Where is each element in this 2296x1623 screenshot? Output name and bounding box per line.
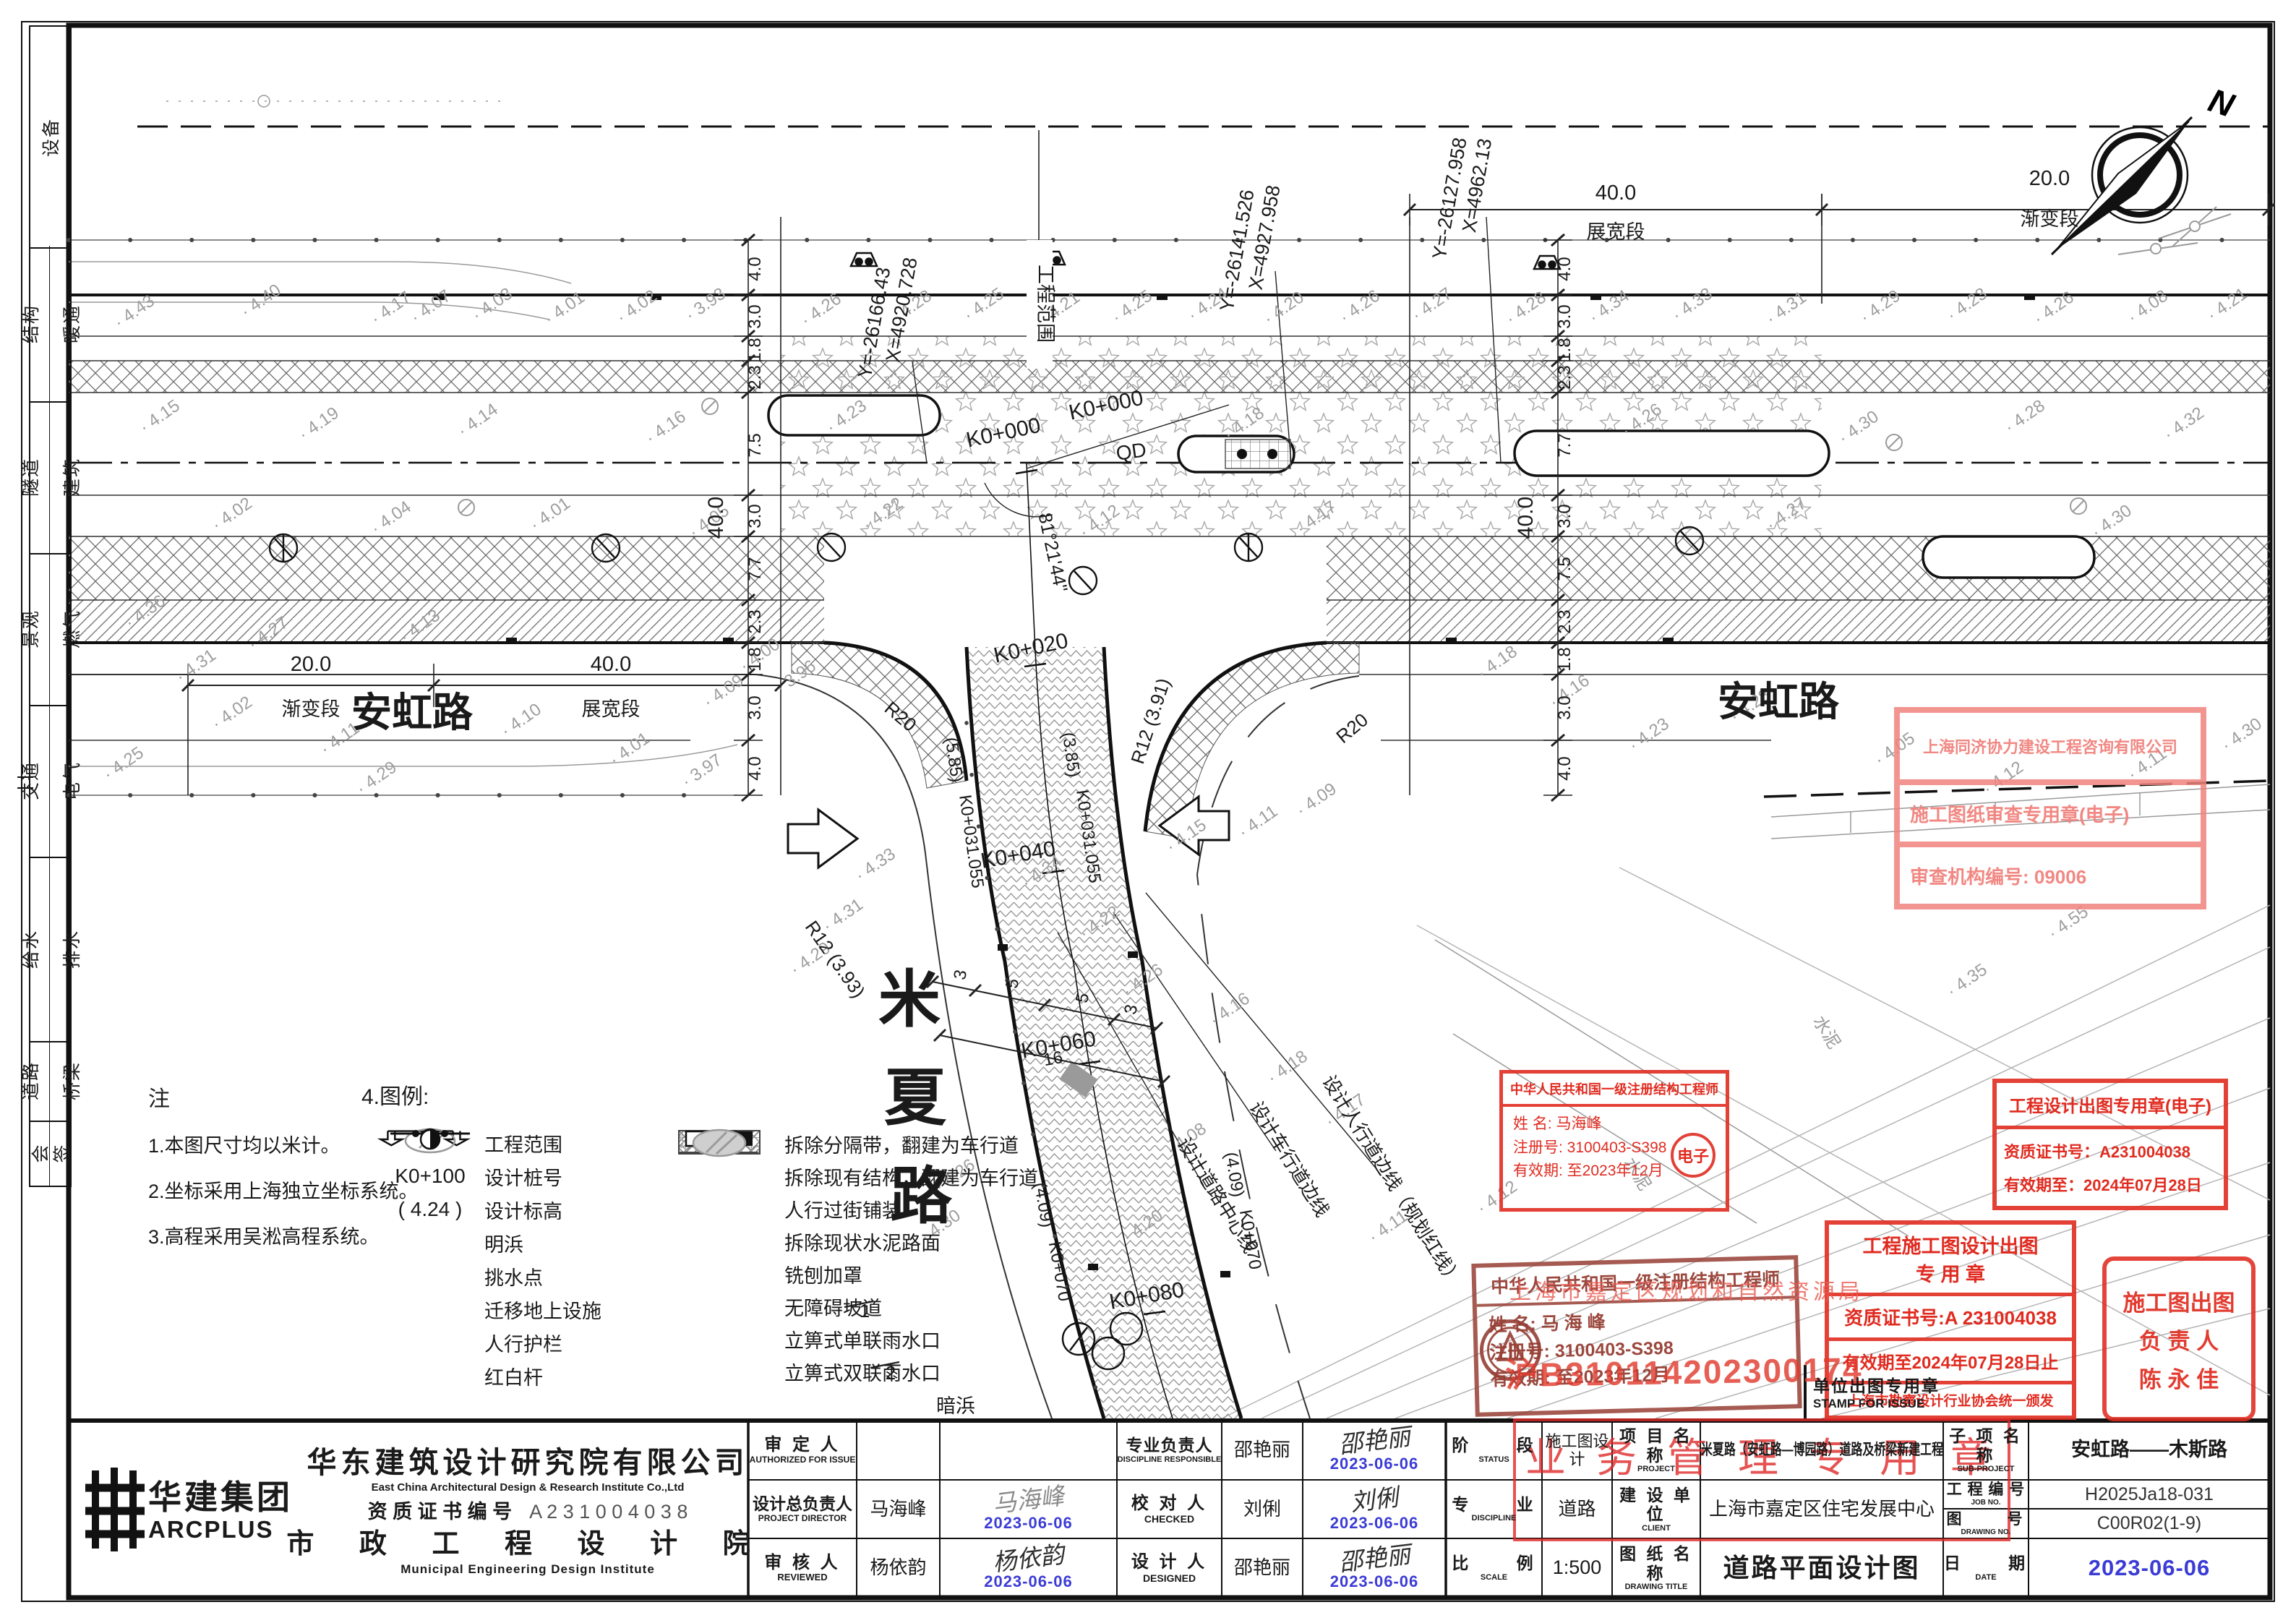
drawing-label: 20.0 <box>291 653 331 676</box>
legend-item: 立箅式双联雨水口 <box>676 1356 1038 1388</box>
drawing-label: 2.3 <box>745 365 765 389</box>
drawing-label: 1.8 <box>1555 647 1575 671</box>
status-label: 阶 段 STATUS <box>1446 1421 1542 1480</box>
drawing-label: 3.0 <box>1555 304 1575 328</box>
spot-elevation: · 4.33 <box>1669 284 1716 325</box>
jobno-label: 工 程 编 号 JOB NO. <box>1943 1480 2029 1509</box>
drawing-label: 20.0 <box>2029 167 2070 190</box>
subproject-value: 安虹路——木斯路 <box>2029 1421 2270 1480</box>
engineer-stamp-electronic: 中华人民共和国一级注册结构工程师 姓 名: 马海峰 注册号: 3100403-S… <box>1499 1070 1729 1212</box>
scale-label: 比 例 SCALE <box>1446 1538 1542 1598</box>
discipline-value: 道路 <box>1542 1480 1612 1538</box>
company-block: 华东建筑设计研究院有限公司 East China Architectural D… <box>311 1428 745 1594</box>
spot-elevation: · 4.32 <box>2160 403 2208 445</box>
spot-elevation: · 4.30 <box>1835 407 1882 448</box>
spot-elevation: · 3.93 <box>682 284 729 325</box>
subproject-label: 子 项 名 称 SUB-PROJECT <box>1943 1421 2029 1480</box>
association-seal-icon <box>1477 1316 1543 1383</box>
date-value: 2023-06-06 <box>2029 1538 2270 1598</box>
drawing-title-value: 道路平面设计图 <box>1700 1538 1943 1598</box>
role-authorized: 审 定 人 AUTHORIZED FOR ISSUE <box>748 1421 857 1480</box>
legend-item: 明浜 <box>376 1226 601 1259</box>
drawing-label: 3.0 <box>1555 695 1575 719</box>
drawing-label: QD <box>1115 438 1148 465</box>
dwgno-label: 图 号 DRAWING NO. <box>1943 1509 2029 1538</box>
spot-elevation: · 4.33 <box>852 844 899 886</box>
spot-elevation: · 4.02 <box>208 693 256 734</box>
drawing-label: 16 <box>1042 1048 1064 1070</box>
spot-elevation: · 4.34 <box>1585 286 1633 327</box>
review-stamp: 上海同济协力建设工程咨询有限公司 施工图纸审查专用章(电子) 审查机构编号: 0… <box>1894 707 2206 909</box>
drawing-label: 7.7 <box>745 557 765 581</box>
spot-elevation: · 4.04 <box>367 497 415 539</box>
drawing-label: 渐变段 <box>2021 208 2079 230</box>
drawing-label: 4.0 <box>745 756 765 780</box>
spot-elevation: · 4.01 <box>606 729 654 770</box>
spot-elevation: · 4.09 <box>1293 779 1340 821</box>
drawing-label: 3.0 <box>1555 504 1575 528</box>
drawing-label: 40.0 <box>1595 181 1636 205</box>
spot-elevation: · 4.23 <box>1943 284 1991 325</box>
drawing-label: 安虹路 <box>351 690 474 735</box>
drawing-label: 7.5 <box>1555 557 1575 581</box>
drawing-label: 夏 <box>884 1063 947 1133</box>
spot-elevation: · 4.03 <box>468 284 516 325</box>
drawing-label: 展宽段 <box>582 698 641 720</box>
role-reviewed: 审 核 人 REVIEWED <box>748 1538 857 1598</box>
north-compass: N <box>2052 81 2239 254</box>
project-label: 项 目 名 称 PROJECT <box>1612 1421 1700 1480</box>
name-checked: 刘俐 <box>1222 1480 1303 1538</box>
drawing-label: 40.0 <box>1514 497 1538 539</box>
legend-item: 迁移地上设施 <box>376 1293 601 1326</box>
sig-discipline: 邵艳丽 2023-06-06 <box>1303 1421 1446 1480</box>
stamp-for-issue-cell: 单位出图专用章 STAMP FOR ISSUE <box>1813 1372 1940 1411</box>
drawing-label: 40.0 <box>704 497 728 539</box>
sidebar-item-landscape-gas: 景观燃气 <box>29 553 72 706</box>
drawing-label: 3.0 <box>745 695 765 719</box>
drawing-label: 工程范围 <box>1035 265 1056 343</box>
sig-designed: 邵艳丽 2023-06-06 <box>1303 1538 1446 1598</box>
drawing-label: 安虹路 <box>1718 679 1840 724</box>
project-value: 米夏路（安虹路—博园路）道路及桥梁新建工程 <box>1700 1421 1943 1480</box>
legend-item: K0+100 设计桩号 <box>376 1160 601 1193</box>
electronic-seal: 电子 <box>1671 1133 1715 1178</box>
name-discipline: 邵艳丽 <box>1222 1421 1303 1480</box>
drawing-label: 渐变段 <box>282 698 340 720</box>
legend-title: 4.图例: <box>361 1079 429 1110</box>
drawing-label: R20 <box>1332 708 1372 748</box>
spot-elevation: · 4.31 <box>172 646 220 687</box>
drawing-label: 2.3 <box>745 609 765 633</box>
legend-item: 拆除现状水泥路面 <box>676 1225 1038 1258</box>
spot-elevation: · 4.29 <box>353 758 400 799</box>
spot-elevation: · 4.07 <box>407 286 455 327</box>
status-value: 施工图设计 <box>1542 1421 1612 1480</box>
drawing-label: 3.0 <box>745 504 765 528</box>
sidebar-item-water: 给水排水 <box>29 857 72 1042</box>
sig-project-director: 马海峰 2023-06-06 <box>940 1480 1117 1538</box>
drawing-label: 3.0 <box>745 304 765 328</box>
spot-elevation: · 4.26 <box>1336 286 1384 327</box>
name-project-director: 马海峰 <box>857 1480 940 1538</box>
spot-elevation: · 4.10 <box>497 700 545 741</box>
drawing-title-label: 图 纸 名 称 DRAWING TITLE <box>1612 1538 1700 1598</box>
drawing-label: 7.7 <box>1555 433 1575 457</box>
spot-elevation: · 4.40 <box>237 281 285 322</box>
elevation-sample: ( 4.24 ) <box>376 1198 484 1221</box>
sig-checked: 刘俐 2023-06-06 <box>1303 1480 1446 1538</box>
jobno-value: H2025Ja18-031 <box>2029 1480 2270 1509</box>
spot-elevation: · 4.23 <box>1625 714 1673 755</box>
spot-elevation: · 4.25 <box>960 284 1008 325</box>
spot-elevation: · 4.28 <box>2001 396 2049 437</box>
sidebar-item-equipment: 设备 <box>29 25 72 249</box>
responsible-person-stamp: 施工图出图 负 责 人 陈 永 佳 <box>2102 1256 2256 1421</box>
spot-elevation: · 4.35 <box>1943 960 1991 1001</box>
legend-item: 无障碍坡道 <box>676 1290 1038 1323</box>
drawing-sheet: N · 4.43· 4.40· 4.17· 4.07· 4.03· 4.01· … <box>0 0 2296 1623</box>
name-reviewed: 杨依韵 <box>857 1538 940 1598</box>
discipline-label: 专 业 DISCIPLINE <box>1446 1480 1542 1538</box>
spot-elevation: · 4.15 <box>136 396 184 437</box>
legend-item: ( 4.24 ) 设计标高 <box>376 1193 601 1226</box>
spot-elevation: · 4.19 <box>295 403 343 445</box>
drawing-label: 设计车行道边线 <box>1246 1097 1334 1220</box>
spot-elevation: · 4.27 <box>1408 284 1456 325</box>
sig-reviewed: 杨依韵 2023-06-06 <box>940 1538 1117 1598</box>
role-project-director: 设计总负责人 PROJECT DIRECTOR <box>748 1480 857 1538</box>
drawing-label: 1.8 <box>745 338 765 361</box>
legend-item: 暗浜 <box>676 1388 1038 1421</box>
spot-elevation: · 4.18 <box>1473 642 1521 683</box>
drawing-label: 水泥 <box>1809 1013 1843 1053</box>
scale-value: 1:500 <box>1542 1538 1612 1598</box>
legend-item: 铣刨加罩 <box>676 1258 1038 1290</box>
date-label: 日 期 DATE <box>1943 1538 2029 1598</box>
name-designed: 邵艳丽 <box>1222 1538 1303 1598</box>
ramp-icons <box>851 252 1560 269</box>
role-checked: 校 对 人 CHECKED <box>1117 1480 1222 1538</box>
spot-elevation: · 4.29 <box>1856 286 1904 327</box>
spot-elevation: · 4.16 <box>642 407 690 448</box>
drawing-label: 设计人行道边线（规划红线） <box>1318 1071 1466 1290</box>
spot-elevation: · 4.01 <box>526 494 574 535</box>
legend-item: 立箅式单联雨水口 <box>676 1323 1038 1356</box>
legend-item: 红白杆 <box>376 1359 601 1392</box>
crossing-pad <box>1225 440 1290 468</box>
existing-features <box>69 95 2270 1236</box>
drawing-label: 2.3 <box>1555 609 1575 633</box>
legend-item: 人行护栏 <box>376 1326 601 1359</box>
spot-elevation: · 4.21 <box>2203 284 2251 325</box>
sidebar-label: 设备 <box>37 117 63 156</box>
drawing-label: 展宽段 <box>1587 221 1645 243</box>
north-label: N <box>2204 81 2239 124</box>
drawing-label: 40.0 <box>591 653 631 676</box>
drawing-label: 4.0 <box>1555 257 1575 281</box>
arcplus-logo-icon <box>85 1466 145 1553</box>
legend-item: 挑水点 <box>376 1259 601 1293</box>
role-designed: 设 计 人 DESIGNED <box>1117 1538 1222 1598</box>
client-label: 建 设 单 位 CLIENT <box>1612 1480 1700 1538</box>
legend-item: 拆除现有结构，翻建为车行道 <box>676 1160 1038 1193</box>
legend-item: 人行过街铺装 <box>676 1193 1038 1225</box>
drawing-label: 2.3 <box>1555 365 1575 389</box>
spot-elevation: · 3.97 <box>678 750 726 792</box>
drawing-label: 1.8 <box>745 647 765 671</box>
sidebar-item-road-bridge: 道路桥梁 <box>29 1041 72 1122</box>
drawing-label: 7.5 <box>745 433 765 457</box>
drawing-label: 米 <box>878 965 941 1035</box>
sidebar-item-traffic-electric: 交通电气 <box>29 705 72 858</box>
spot-elevation: · 4.02 <box>208 494 256 535</box>
sidebar-item-countersign: 会签 <box>29 1121 72 1187</box>
station-sample: K0+100 <box>376 1165 484 1188</box>
role-discipline-responsible: 专业负责人 DISCIPLINE RESPONSIBLE <box>1117 1421 1222 1480</box>
sidebar-item-tunnel-arch: 隧道建筑 <box>29 401 72 554</box>
spot-elevation: · 4.25 <box>1108 286 1156 327</box>
legend-right: 拆除分隔带，翻建为车行道 拆除现有结构，翻建为车行道 人行过街铺装 拆除现状水泥… <box>676 1128 1038 1421</box>
sidebar-item-structure-hvac: 结构暖通 <box>29 246 72 403</box>
company-logo-text: 华建集团 ARCPLUS <box>148 1468 307 1554</box>
drawing-label: 4.0 <box>745 257 765 281</box>
engineer-stamp-paper: 中华人民共和国一级注册结构工程师 姓 名: 马 海 峰 注册号: 3100403… <box>1471 1255 1802 1417</box>
dwgno-value: C00R02(1-9) <box>2029 1509 2270 1538</box>
spot-elevation: · 4.09 <box>700 671 748 712</box>
legend-left: 工程范围 K0+100 设计桩号 ( 4.24 ) 设计标高 明浜 挑水点 迁移… <box>376 1126 601 1392</box>
drawing-label: 3 <box>950 968 971 982</box>
spot-elevation: · 4.43 <box>111 291 158 333</box>
spot-elevation: · 4.30 <box>2218 714 2266 755</box>
spot-elevation: · 4.14 <box>454 400 502 441</box>
drawing-label: 4.0 <box>1555 756 1575 780</box>
drawing-label: 1.8 <box>1555 338 1575 361</box>
spot-elevation: · 4.25 <box>100 743 147 784</box>
spot-elevation: · 4.02 <box>613 286 661 327</box>
spot-elevation: · 4.08 <box>2124 286 2172 327</box>
client-value: 上海市嘉定区住宅发展中心 <box>1700 1480 1943 1538</box>
issue-stamp-electronic: 工程设计出图专用章(电子) 资质证书号：A231004038 有效期至：2024… <box>1992 1079 2228 1210</box>
spot-elevation: · 4.11 <box>1235 802 1281 842</box>
